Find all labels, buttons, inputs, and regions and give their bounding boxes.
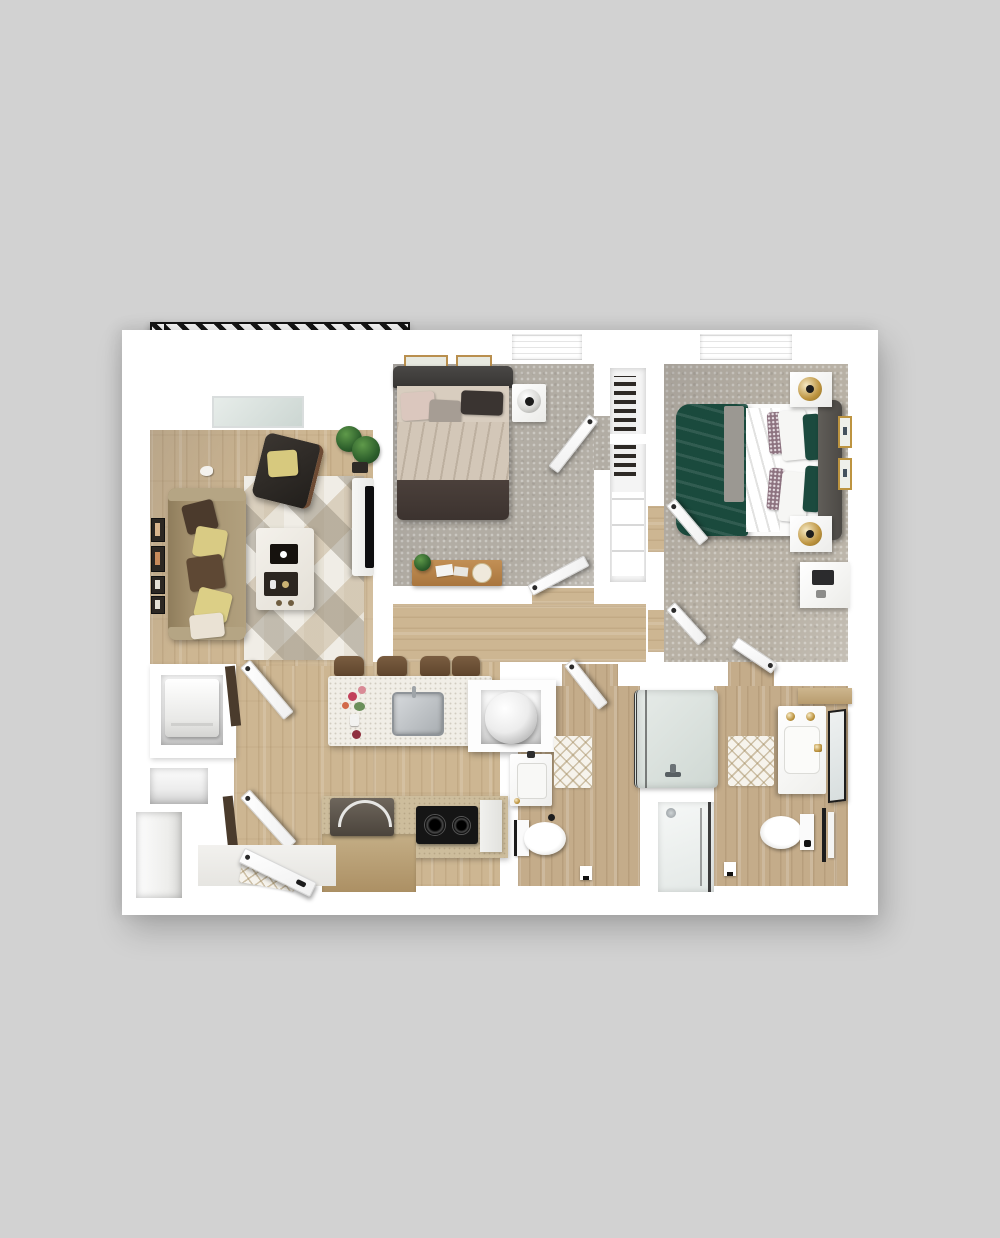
bedroom2-frame-1 bbox=[838, 416, 852, 448]
kitchen-cabinet-block bbox=[322, 834, 416, 892]
bird-figurine bbox=[200, 466, 213, 476]
balcony-slider-door bbox=[212, 396, 304, 428]
bench-tray bbox=[472, 563, 492, 583]
pillow-brown bbox=[186, 554, 226, 593]
shower-glass-1 bbox=[708, 802, 711, 892]
bath2-faucet bbox=[814, 744, 822, 752]
hallway-floor bbox=[393, 604, 646, 662]
water-heater bbox=[165, 679, 219, 737]
bed1-pillow-gray bbox=[428, 399, 461, 425]
stool-4 bbox=[452, 656, 480, 676]
bedroom2-door-opening-b bbox=[648, 610, 664, 652]
washer-dryer bbox=[485, 692, 537, 744]
bath1-floor-drain bbox=[548, 814, 555, 821]
flower-vase bbox=[350, 714, 359, 726]
gallery-frame-3 bbox=[151, 576, 165, 594]
bedroom2-frame-2 bbox=[838, 458, 852, 490]
bed1-duvet bbox=[397, 422, 509, 482]
kitchen-faucet bbox=[412, 686, 416, 698]
bath2-leaning-mirror bbox=[828, 709, 846, 803]
stool-3 bbox=[420, 656, 450, 676]
cooktop bbox=[416, 806, 478, 844]
bath1-sink bbox=[517, 763, 547, 799]
bedroom2-lamp-bottom bbox=[798, 522, 822, 546]
closet-hanging-clothes bbox=[614, 376, 636, 476]
bedroom1-bench bbox=[412, 560, 502, 586]
armchair-pillow bbox=[267, 449, 299, 477]
utility-closet bbox=[150, 664, 236, 758]
bath1-faucet bbox=[527, 751, 535, 758]
living-plant-b bbox=[352, 436, 380, 464]
bedroom1-lamp bbox=[517, 389, 541, 413]
bath2-toilet bbox=[760, 816, 802, 849]
bed1-foot-blanket bbox=[397, 480, 509, 520]
bath2-towel bbox=[828, 812, 834, 858]
bed2-gray-throw bbox=[724, 406, 744, 502]
entry-door-handle bbox=[295, 879, 306, 888]
bath1-tub bbox=[634, 690, 718, 788]
tray-2 bbox=[264, 572, 298, 596]
flowers-greens bbox=[354, 702, 365, 711]
floor-plan-canvas bbox=[0, 0, 1000, 1238]
pillow-cream bbox=[189, 612, 225, 639]
coat-closet bbox=[136, 812, 182, 898]
bench-books bbox=[435, 564, 453, 577]
bath1-tp-holder bbox=[580, 866, 592, 880]
bath2-mat bbox=[728, 736, 774, 786]
bath1-mat bbox=[554, 736, 592, 788]
bath2-towel-bar bbox=[822, 808, 826, 862]
entry-niche bbox=[150, 768, 208, 804]
appliance-handle bbox=[338, 800, 392, 827]
desk-laptop bbox=[812, 570, 834, 585]
gallery-frame-2 bbox=[151, 546, 165, 572]
coffee-table bbox=[256, 528, 314, 610]
closet-divider-wall bbox=[610, 434, 646, 444]
kitchen-sink bbox=[392, 692, 444, 736]
gallery-frame-1 bbox=[151, 518, 165, 542]
counter-end-white bbox=[480, 800, 502, 852]
bedroom2-desk bbox=[800, 562, 850, 608]
countertop-appliance bbox=[330, 798, 394, 836]
burner-2 bbox=[452, 816, 471, 835]
bath2-toilet-tank bbox=[800, 814, 814, 850]
bedroom2-door-opening-a bbox=[648, 506, 664, 552]
burner-1 bbox=[424, 814, 446, 836]
tv-screen bbox=[365, 486, 374, 568]
bed1-headboard bbox=[393, 366, 513, 388]
bedroom2-lamp-top bbox=[798, 377, 822, 401]
bath2-upper-cabinet bbox=[798, 688, 852, 704]
tray-1 bbox=[270, 544, 298, 564]
bath2-vanity bbox=[778, 706, 826, 794]
stool-2 bbox=[377, 656, 407, 676]
tub-glass-panel bbox=[645, 690, 647, 788]
flowers-red bbox=[348, 692, 357, 701]
gallery-frame-4 bbox=[151, 596, 165, 614]
bath2-shower bbox=[658, 802, 714, 892]
bedroom2-window bbox=[700, 334, 792, 360]
bedroom1-bed bbox=[393, 366, 513, 520]
closet-shelves bbox=[612, 492, 644, 576]
sofa bbox=[168, 488, 246, 640]
plant-pot bbox=[352, 462, 368, 473]
stool-1 bbox=[334, 656, 364, 676]
bedroom1-window bbox=[512, 334, 582, 360]
shower-glass-2 bbox=[700, 808, 702, 886]
bath1-toilet bbox=[524, 822, 566, 855]
bed1-pillow-dark bbox=[461, 390, 504, 415]
shower-head bbox=[666, 808, 676, 818]
bath1-vanity bbox=[510, 754, 552, 806]
laundry-niche bbox=[468, 680, 556, 752]
bath2-tp-holder bbox=[724, 862, 736, 876]
